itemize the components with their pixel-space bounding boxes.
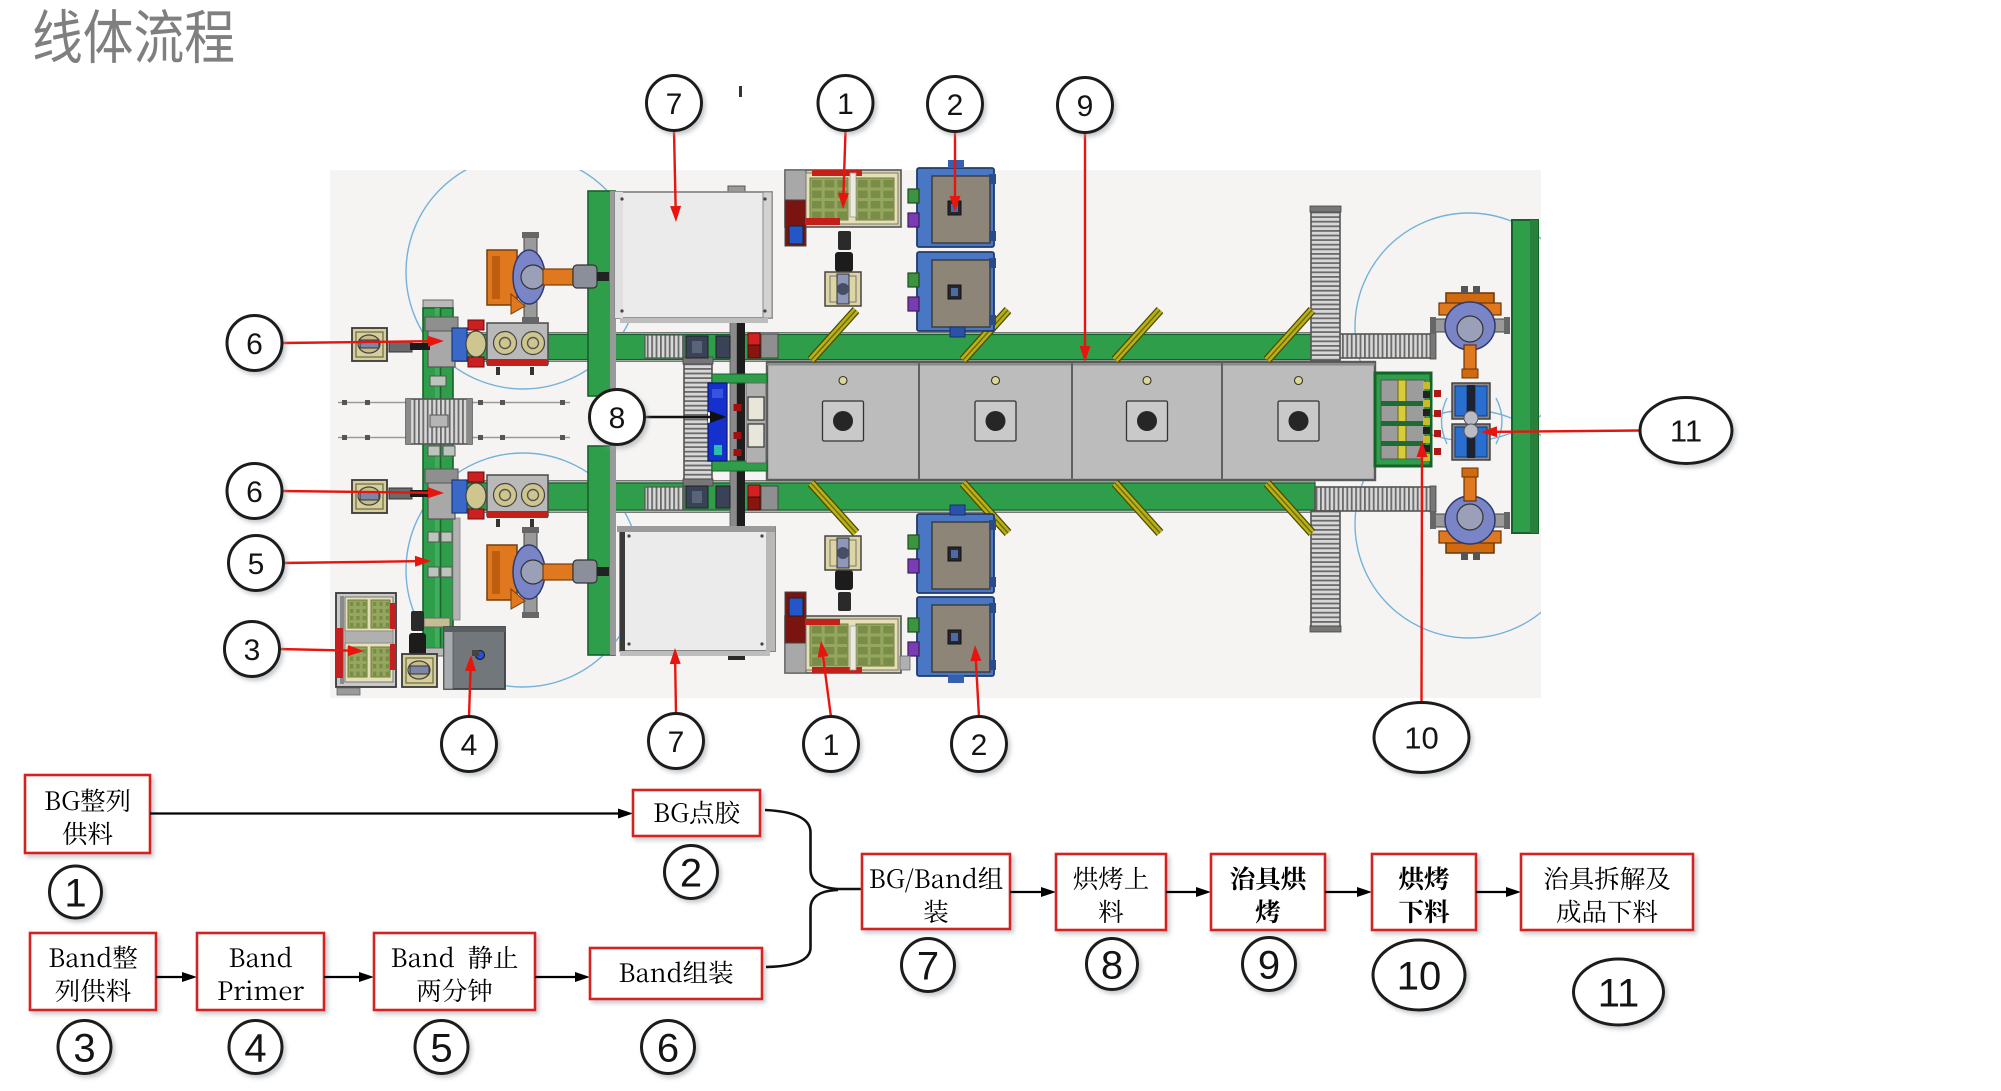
svg-text:3: 3 bbox=[73, 1026, 95, 1070]
svg-text:11: 11 bbox=[1598, 971, 1640, 1015]
svg-text:5: 5 bbox=[430, 1026, 452, 1070]
svg-text:6: 6 bbox=[246, 328, 263, 361]
svg-text:2: 2 bbox=[680, 851, 702, 895]
svg-text:7: 7 bbox=[666, 88, 683, 121]
svg-text:1: 1 bbox=[837, 88, 854, 121]
svg-text:4: 4 bbox=[244, 1026, 266, 1070]
svg-text:11: 11 bbox=[1670, 414, 1702, 449]
svg-text:7: 7 bbox=[668, 726, 685, 759]
svg-text:1: 1 bbox=[823, 729, 840, 762]
svg-text:10: 10 bbox=[1404, 721, 1438, 756]
svg-text:10: 10 bbox=[1397, 954, 1442, 998]
svg-text:6: 6 bbox=[246, 476, 263, 509]
svg-text:3: 3 bbox=[244, 634, 261, 667]
svg-text:8: 8 bbox=[1101, 943, 1123, 987]
svg-text:9: 9 bbox=[1258, 943, 1280, 987]
svg-text:1: 1 bbox=[64, 871, 86, 915]
svg-text:5: 5 bbox=[248, 548, 265, 581]
svg-text:9: 9 bbox=[1077, 90, 1094, 123]
svg-text:4: 4 bbox=[461, 729, 478, 762]
svg-text:2: 2 bbox=[971, 729, 988, 762]
svg-text:8: 8 bbox=[609, 402, 626, 435]
svg-text:6: 6 bbox=[657, 1026, 679, 1070]
svg-text:2: 2 bbox=[947, 89, 964, 122]
svg-text:7: 7 bbox=[917, 944, 939, 988]
